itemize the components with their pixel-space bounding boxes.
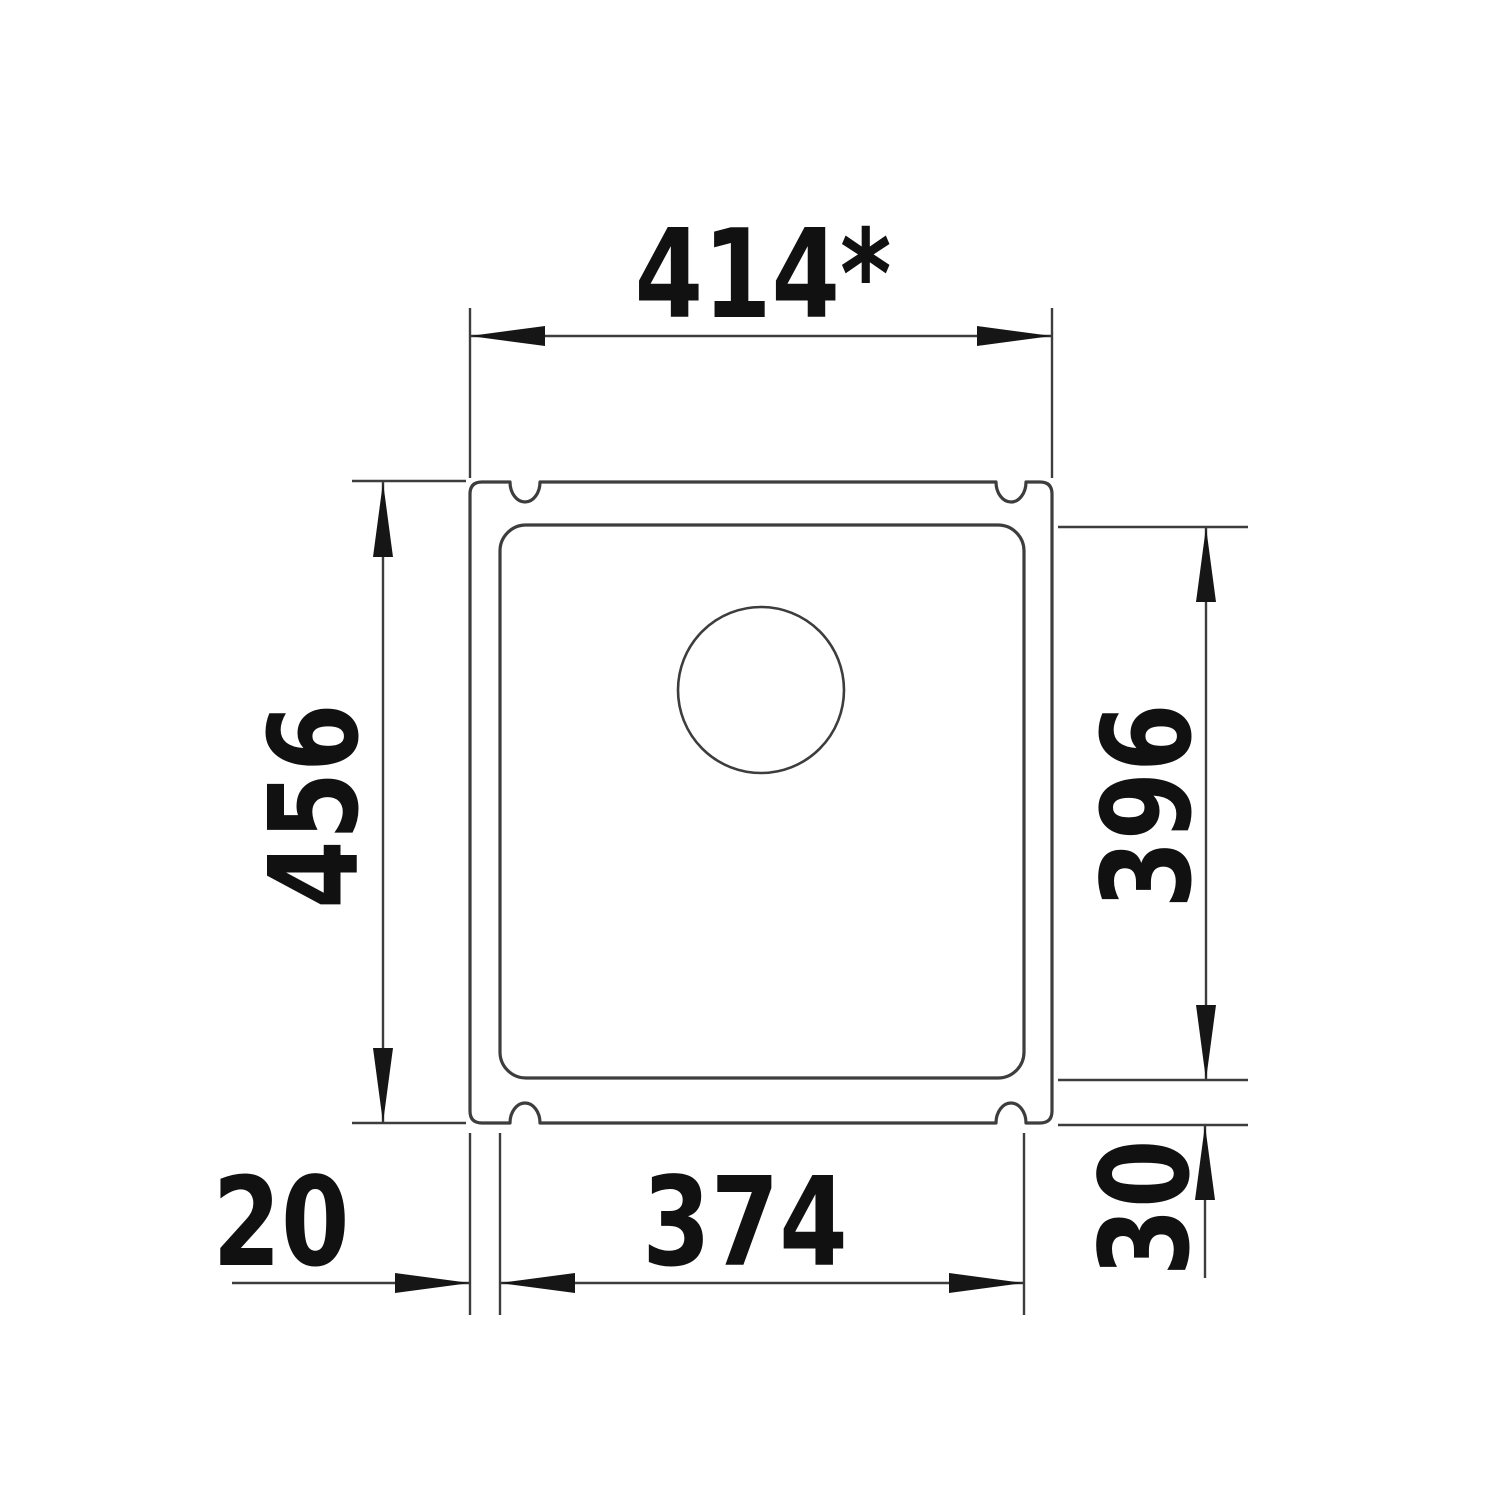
arrowhead-down bbox=[373, 1048, 393, 1123]
dimension-bottom-right-rim: 30 bbox=[1058, 1125, 1248, 1278]
arrowhead-up bbox=[1196, 527, 1216, 602]
dimension-bottom-inner-width: 374 bbox=[500, 1133, 1024, 1315]
arrowhead-right bbox=[395, 1273, 470, 1293]
arrowhead-left bbox=[500, 1273, 575, 1293]
arrowhead-down bbox=[1196, 1005, 1216, 1080]
dimension-label-top-width: 414* bbox=[635, 204, 892, 346]
arrowhead-right bbox=[977, 326, 1052, 346]
sink-outer-outline bbox=[470, 482, 1052, 1123]
dimension-label-left-height: 456 bbox=[244, 703, 386, 908]
sink-technical-drawing: 414* 456 396 374 20 30 bbox=[0, 0, 1500, 1500]
dimension-label-bottom-right-rim: 30 bbox=[1075, 1140, 1217, 1277]
dimension-label-bottom-inner-width: 374 bbox=[642, 1152, 847, 1294]
drain-hole bbox=[678, 607, 844, 773]
dimension-label-left-rim-width: 20 bbox=[213, 1152, 350, 1294]
dimension-left-rim-width: 20 bbox=[213, 1133, 470, 1315]
sink-body bbox=[470, 482, 1052, 1123]
dimension-right-inner-height: 396 bbox=[1058, 527, 1248, 1080]
sink-technical-drawing-page: 414* 456 396 374 20 30 bbox=[0, 0, 1500, 1500]
dimension-label-right-inner-height: 396 bbox=[1077, 703, 1219, 908]
dimension-top-width: 414* bbox=[470, 204, 1052, 478]
arrowhead-right bbox=[949, 1273, 1024, 1293]
dimension-left-height: 456 bbox=[244, 481, 466, 1123]
arrowhead-left bbox=[470, 326, 545, 346]
arrowhead-up bbox=[373, 482, 393, 557]
